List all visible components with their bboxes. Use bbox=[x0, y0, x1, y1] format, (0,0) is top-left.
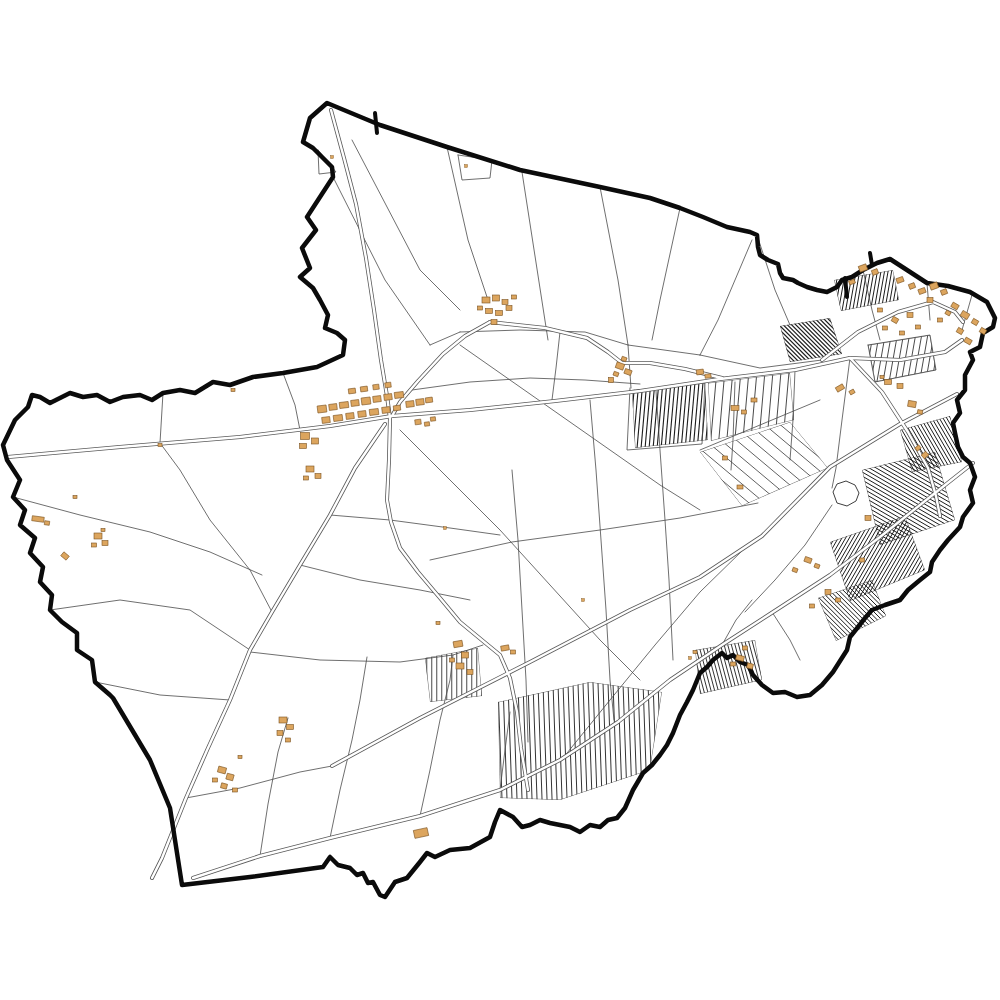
building bbox=[286, 738, 291, 742]
building bbox=[394, 391, 404, 398]
strip-parcels-hatch bbox=[782, 540, 922, 680]
road-west-branch-casing bbox=[152, 424, 385, 878]
building bbox=[158, 444, 162, 447]
building bbox=[384, 394, 393, 401]
parcel-line bbox=[160, 393, 163, 443]
building bbox=[897, 384, 903, 389]
parcel-line bbox=[500, 712, 510, 790]
building bbox=[491, 320, 497, 325]
building bbox=[406, 401, 415, 408]
parcel-line bbox=[430, 503, 758, 560]
building bbox=[102, 541, 108, 546]
building bbox=[213, 778, 218, 782]
boundary-spur bbox=[870, 253, 872, 265]
building bbox=[814, 563, 820, 568]
boundary-spur bbox=[845, 278, 847, 297]
building bbox=[478, 306, 483, 310]
building bbox=[940, 289, 947, 296]
building bbox=[482, 297, 490, 303]
parcel-lines bbox=[13, 140, 972, 856]
building bbox=[348, 388, 356, 394]
road-northeast-flank bbox=[850, 358, 940, 516]
building bbox=[346, 413, 355, 420]
building bbox=[613, 371, 619, 376]
building bbox=[917, 410, 923, 415]
building bbox=[304, 476, 309, 480]
parcel-line bbox=[745, 505, 832, 612]
building bbox=[92, 543, 97, 547]
building bbox=[32, 516, 45, 523]
parcel-line bbox=[522, 172, 548, 340]
building bbox=[462, 652, 469, 658]
building bbox=[220, 783, 227, 789]
parcel-line bbox=[400, 430, 640, 680]
road-southern-boundary-casing bbox=[193, 463, 973, 878]
building bbox=[731, 406, 739, 411]
parcel-line bbox=[590, 400, 614, 720]
building bbox=[804, 556, 812, 563]
building bbox=[860, 558, 865, 562]
building bbox=[512, 295, 517, 299]
building bbox=[385, 382, 392, 388]
building bbox=[425, 397, 433, 403]
building bbox=[233, 788, 238, 792]
building bbox=[723, 456, 728, 460]
building bbox=[825, 590, 831, 595]
cadastral-map-svg bbox=[0, 0, 1000, 1000]
building bbox=[493, 295, 500, 301]
building bbox=[865, 516, 871, 521]
building bbox=[306, 466, 314, 472]
building bbox=[436, 622, 440, 625]
parcel-line bbox=[600, 187, 628, 345]
parcel-line bbox=[447, 147, 488, 300]
building bbox=[496, 311, 503, 316]
building-dot bbox=[465, 165, 468, 168]
building bbox=[880, 376, 884, 379]
building-dot bbox=[331, 156, 334, 159]
building bbox=[693, 651, 697, 654]
building bbox=[849, 389, 855, 395]
building bbox=[333, 414, 343, 421]
building bbox=[373, 384, 380, 390]
parcel-line bbox=[722, 600, 752, 645]
parcel-line bbox=[300, 565, 470, 600]
building bbox=[891, 316, 899, 323]
building bbox=[382, 407, 391, 414]
parcel-line bbox=[628, 345, 631, 388]
parcel-line bbox=[330, 515, 500, 535]
building bbox=[339, 401, 349, 408]
pond bbox=[833, 481, 859, 506]
building bbox=[238, 756, 242, 759]
building bbox=[792, 567, 798, 572]
building bbox=[277, 731, 283, 736]
building bbox=[971, 318, 979, 325]
map-canvas bbox=[0, 0, 1000, 1000]
building bbox=[746, 663, 753, 669]
building bbox=[467, 670, 473, 675]
parcel-line bbox=[160, 443, 272, 612]
building bbox=[624, 368, 632, 375]
building bbox=[369, 408, 379, 415]
building bbox=[416, 399, 425, 406]
building bbox=[486, 309, 493, 314]
building bbox=[609, 378, 614, 383]
building bbox=[908, 283, 915, 290]
road-west-branch bbox=[152, 424, 385, 878]
building bbox=[506, 306, 512, 311]
building bbox=[743, 646, 748, 650]
parcel-line bbox=[95, 682, 230, 700]
building bbox=[705, 374, 711, 379]
parcel-line bbox=[50, 600, 250, 650]
building bbox=[361, 397, 371, 405]
building bbox=[360, 386, 368, 392]
building bbox=[453, 640, 463, 647]
parcel-line bbox=[652, 208, 680, 340]
building-dot bbox=[582, 599, 585, 602]
parcel-line bbox=[700, 355, 822, 368]
road-northeast-flank-casing bbox=[850, 358, 940, 516]
building bbox=[415, 419, 422, 425]
building bbox=[502, 300, 508, 305]
parcel-line bbox=[832, 358, 850, 488]
building bbox=[373, 396, 382, 403]
parcel-line bbox=[460, 345, 700, 510]
building bbox=[907, 313, 913, 318]
building bbox=[511, 650, 516, 654]
building bbox=[94, 533, 102, 539]
building bbox=[456, 663, 464, 669]
building bbox=[900, 331, 905, 335]
building bbox=[217, 766, 226, 774]
building bbox=[430, 417, 435, 422]
building bbox=[908, 400, 917, 407]
building bbox=[878, 308, 883, 312]
parcel-line bbox=[412, 378, 640, 390]
building bbox=[737, 485, 743, 489]
building bbox=[61, 552, 70, 560]
parcel-line bbox=[260, 718, 288, 856]
building bbox=[731, 662, 736, 666]
parcel-line bbox=[700, 240, 752, 355]
building bbox=[871, 269, 878, 276]
building bbox=[810, 604, 815, 608]
parcel-line bbox=[330, 657, 367, 838]
building bbox=[315, 474, 321, 479]
buildings bbox=[32, 264, 987, 839]
building bbox=[858, 264, 868, 272]
building bbox=[312, 438, 319, 444]
building bbox=[231, 389, 235, 392]
building bbox=[916, 325, 921, 329]
building bbox=[896, 276, 904, 283]
strip-parcels-hatch bbox=[752, 281, 871, 400]
building bbox=[501, 645, 510, 651]
building bbox=[101, 529, 105, 532]
building bbox=[964, 337, 973, 345]
parcel-line bbox=[13, 497, 262, 575]
building bbox=[836, 598, 841, 602]
building bbox=[927, 298, 933, 303]
building bbox=[883, 326, 888, 330]
building bbox=[751, 398, 757, 402]
parcel-line bbox=[186, 766, 332, 798]
building bbox=[885, 380, 892, 385]
building bbox=[287, 725, 294, 730]
building bbox=[279, 717, 287, 723]
building bbox=[73, 496, 77, 499]
building bbox=[317, 405, 327, 413]
parcel-line bbox=[563, 548, 745, 758]
building bbox=[44, 521, 50, 526]
building bbox=[413, 828, 428, 839]
building bbox=[301, 433, 310, 440]
building bbox=[938, 318, 943, 322]
parcel-line bbox=[552, 332, 560, 400]
building bbox=[393, 405, 401, 411]
building-dot bbox=[689, 657, 692, 660]
building bbox=[351, 400, 360, 407]
building-dot bbox=[444, 527, 447, 530]
building bbox=[450, 658, 455, 662]
building bbox=[226, 773, 234, 781]
building bbox=[322, 417, 331, 424]
building bbox=[358, 411, 367, 418]
boundary-spur bbox=[375, 113, 377, 133]
building bbox=[424, 422, 429, 427]
building bbox=[742, 410, 747, 414]
building bbox=[918, 287, 926, 294]
parcel-line bbox=[731, 382, 735, 470]
building bbox=[835, 384, 844, 392]
road-southern-boundary bbox=[193, 463, 973, 878]
parcel-line bbox=[772, 612, 800, 660]
building bbox=[300, 444, 307, 449]
parcel-line bbox=[283, 373, 300, 430]
parcel-line bbox=[460, 330, 700, 355]
building bbox=[696, 369, 704, 375]
building bbox=[329, 404, 338, 411]
